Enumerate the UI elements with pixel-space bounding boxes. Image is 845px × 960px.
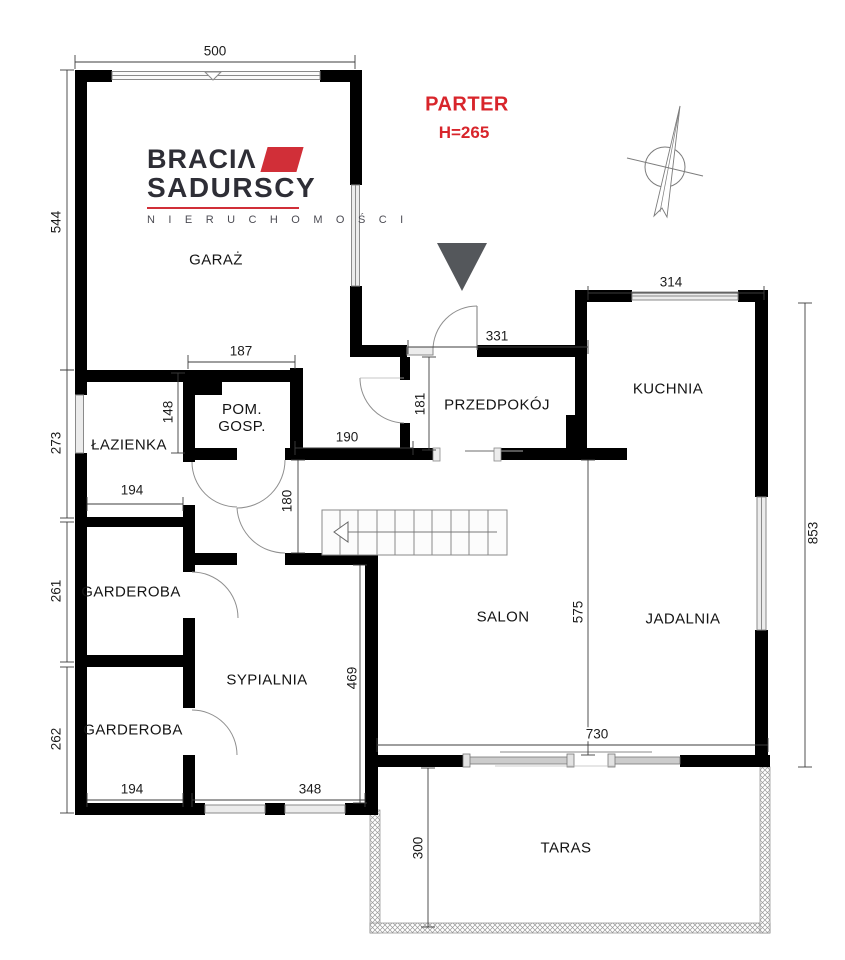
stairs [322, 510, 507, 555]
room-label: GARAŻ [189, 251, 243, 268]
room-label: KUCHNIA [633, 380, 703, 397]
dimension-label: 853 [806, 520, 820, 547]
logo-flag-icon [260, 147, 303, 172]
dimension-label: 194 [119, 782, 146, 796]
dimension-label: 261 [49, 578, 63, 605]
room-label: JADALNIA [646, 610, 721, 627]
entrance-marker-icon [437, 243, 487, 291]
room-label: TARAS [541, 839, 592, 856]
dimension-label: 575 [571, 599, 585, 626]
dimension-label: 181 [413, 391, 427, 418]
dimension-label: 187 [228, 344, 255, 358]
room-label: SALON [477, 608, 530, 625]
room-label: POM. GOSP. [218, 401, 266, 436]
dimension-label: 300 [411, 835, 425, 862]
compass-north-icon [627, 106, 703, 217]
dimension-label: 273 [49, 430, 63, 457]
sliding-door-terrace [463, 752, 680, 767]
room-label: SYPIALNIA [226, 671, 307, 688]
logo-text-line2: SADURSCY [147, 173, 307, 204]
dimension-label: 348 [297, 782, 324, 796]
dimension-label: 469 [345, 665, 359, 692]
room-label: ŁAZIENKA [91, 436, 167, 453]
dimension-label: 314 [658, 275, 685, 289]
dimension-label: 500 [202, 44, 229, 58]
plan-title: PARTER [425, 94, 509, 117]
dimension-label: 190 [334, 430, 361, 444]
dimension-label: 544 [49, 209, 63, 236]
dimension-label: 194 [119, 483, 146, 497]
dimension-label: 331 [484, 329, 511, 343]
dimension-label: 262 [49, 726, 63, 753]
dimension-label: 730 [584, 727, 611, 741]
room-label: GARDEROBA [83, 721, 182, 738]
dimension-label: 180 [280, 488, 294, 515]
room-label: PRZEDPOKÓJ [444, 396, 550, 413]
brand-logo: BRACIΛ SADURSCY N I E R U C H O M O Ś C … [147, 146, 307, 226]
dimension-label: 148 [161, 399, 175, 426]
logo-underline [147, 207, 299, 209]
logo-text-line1: BRACIΛ [147, 146, 257, 173]
logo-text-line3: N I E R U C H O M O Ś C I [147, 214, 307, 226]
plan-height-note: H=265 [439, 123, 490, 143]
floor-plan: BRACIΛ SADURSCY N I E R U C H O M O Ś C … [0, 0, 845, 960]
room-label: GARDEROBA [81, 583, 180, 600]
floor-plan-drawing [0, 0, 845, 960]
